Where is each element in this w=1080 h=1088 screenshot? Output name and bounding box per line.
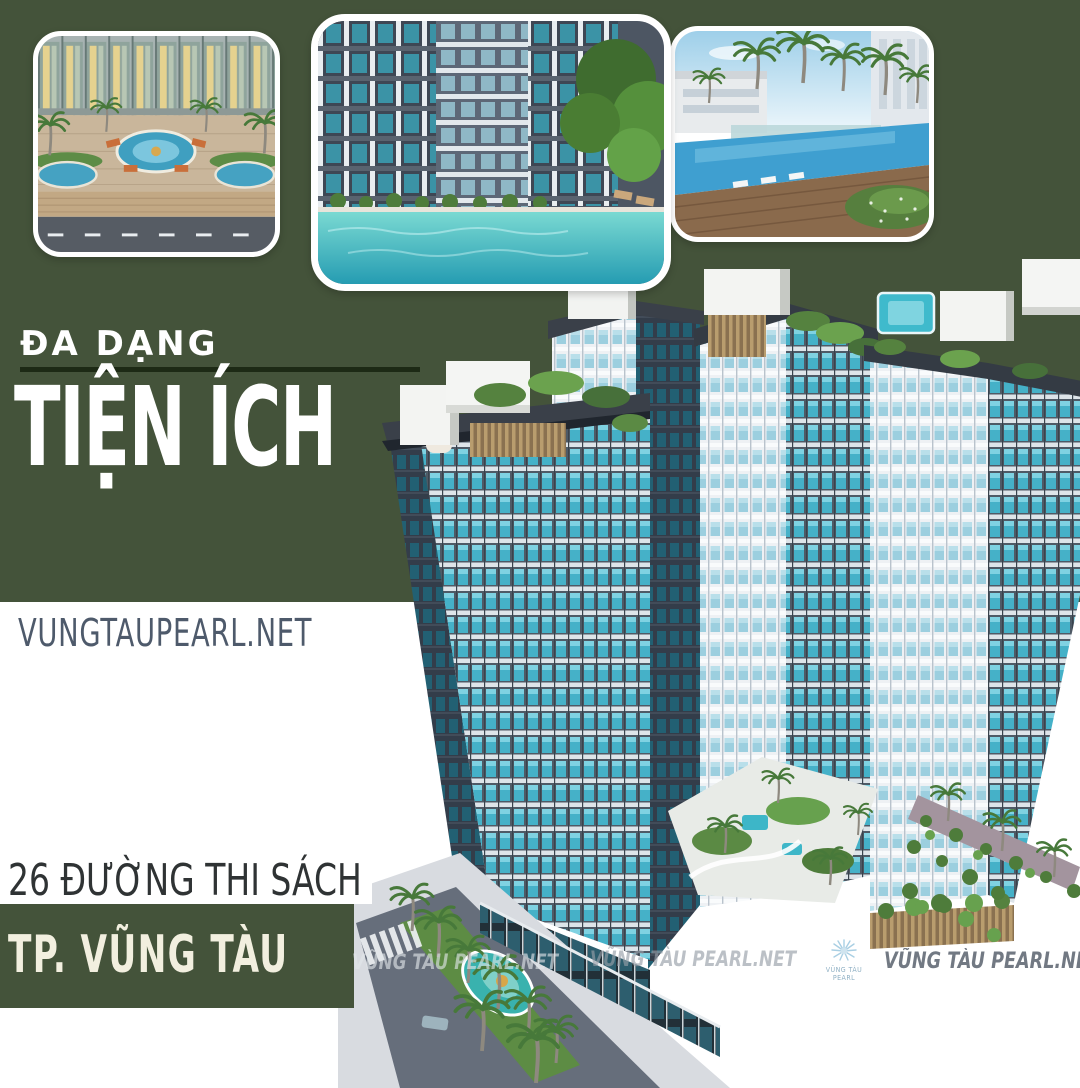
photo-resort-pool <box>670 26 934 242</box>
city-line: TP. VŨNG TÀU <box>8 925 288 985</box>
photo-pool-towers <box>311 14 671 291</box>
resort-pool-scene <box>675 31 929 237</box>
pearl-logo: VŨNG TÀU PEARL <box>814 938 874 982</box>
pearl-logo-text: VŨNG TÀU PEARL <box>817 966 871 982</box>
courtyard-scene <box>38 36 275 252</box>
kicker-text: ĐA DẠNG <box>20 324 219 364</box>
pearl-logo-icon <box>829 938 859 964</box>
watermark-text: VŨNG TÀU PEARL.NET <box>590 947 796 971</box>
watermark-text: VŨNG TÀU PEARL.NET <box>884 949 1080 974</box>
website-url: VUNGTAUPEARL.NET <box>18 611 312 655</box>
address-line: 26 ĐƯỜNG THI SÁCH <box>8 855 362 906</box>
poster-canvas: ĐA DẠNG TIỆN ÍCH VUNGTAUPEARL.NET 26 ĐƯỜ… <box>0 0 1080 1088</box>
photo-courtyard-fountain <box>33 31 280 257</box>
watermark-text: VŨNG TÀU PEARL.NET <box>352 950 558 974</box>
page-title: TIỆN ÍCH <box>14 372 336 482</box>
pool-towers-scene <box>318 21 664 284</box>
